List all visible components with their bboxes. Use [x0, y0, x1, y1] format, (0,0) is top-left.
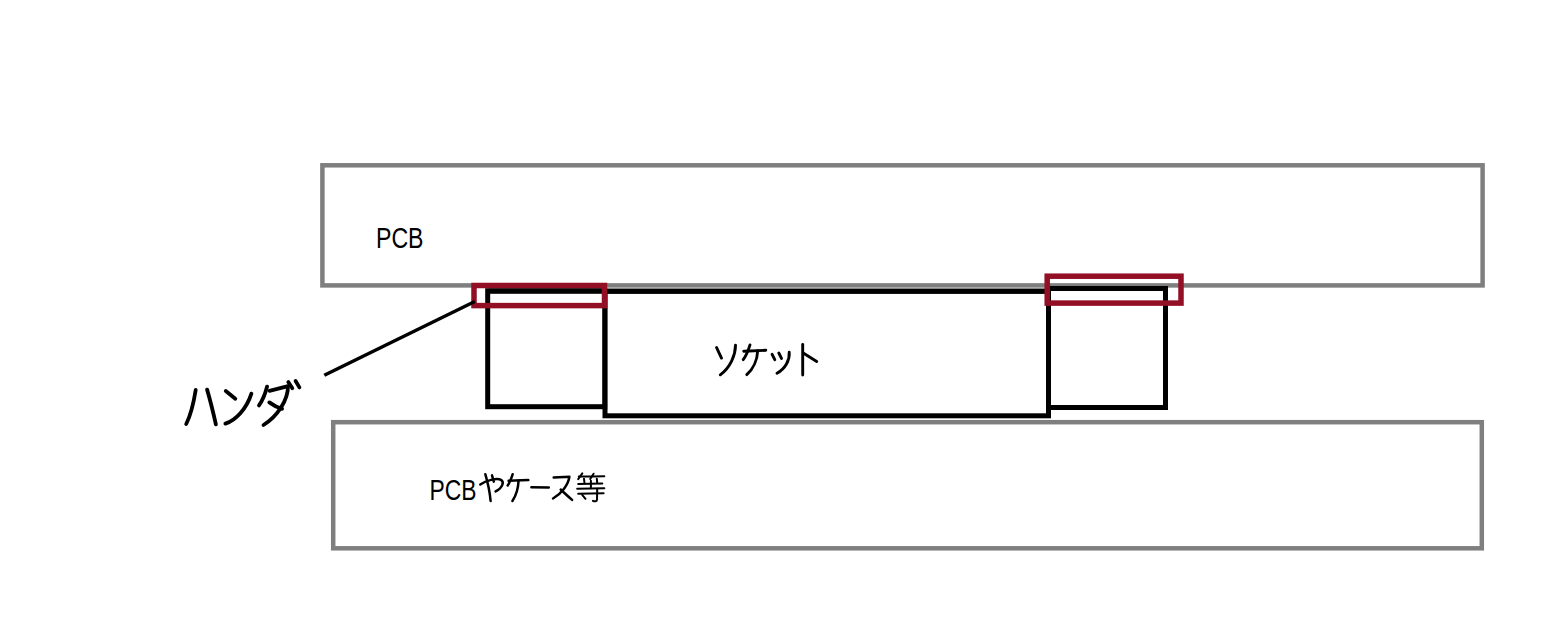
svg-text:PCB: PCB	[430, 474, 477, 506]
svg-text:PCB: PCB	[376, 222, 424, 254]
